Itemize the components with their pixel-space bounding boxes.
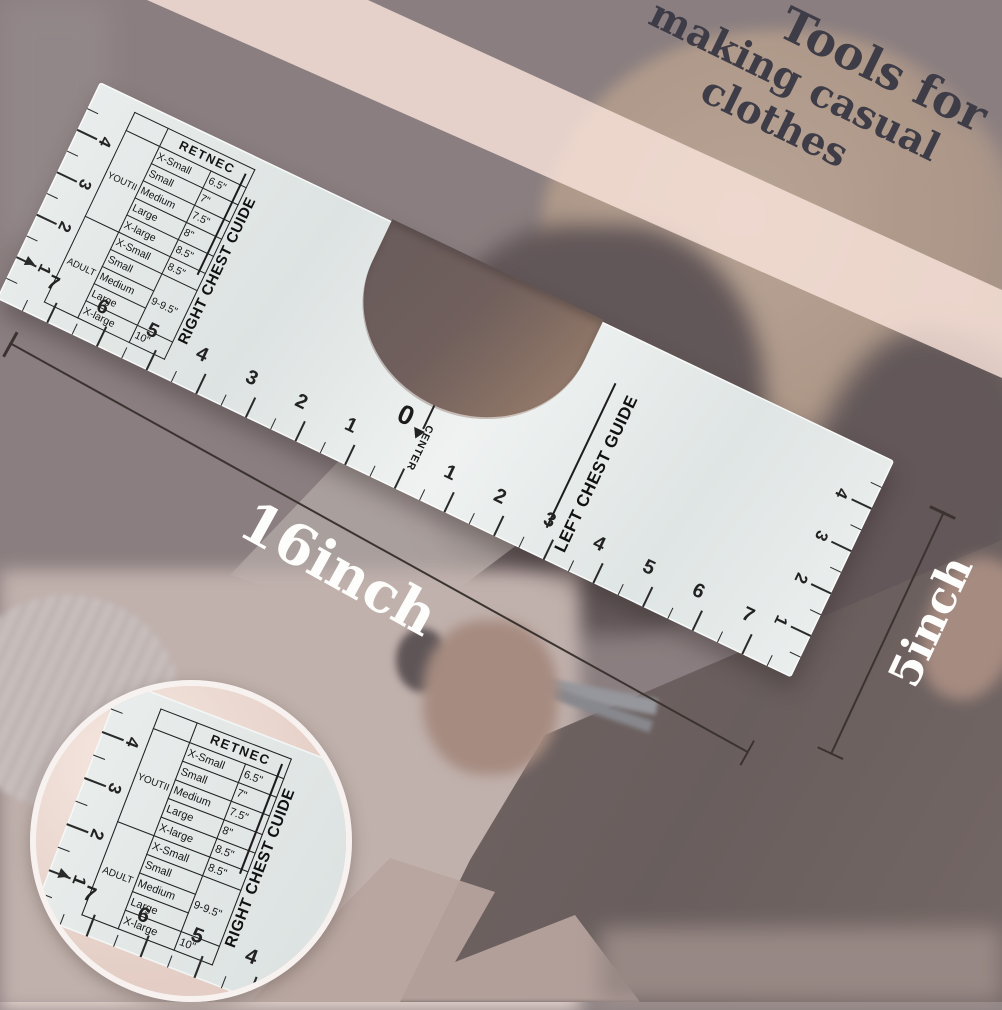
ruler-tick <box>851 498 872 509</box>
ruler-tick <box>850 524 862 531</box>
ruler-tick <box>831 541 852 552</box>
right-scale-number: 3 <box>810 527 832 544</box>
ruler-tick <box>810 609 822 616</box>
right-scale-number: 2 <box>790 569 812 586</box>
ruler-tick <box>811 583 832 594</box>
ruler-tick <box>830 566 842 573</box>
magnifier-inset-circle: RETNEC YOUTII X-Small 6.5" Small 7" Medi… <box>30 680 352 1002</box>
ruler-tick <box>790 651 802 658</box>
right-scale: 4321 <box>32 680 352 1002</box>
right-scale-number: 4 <box>830 485 852 502</box>
ruler-tick <box>791 626 812 637</box>
ruler-face-inset: RETNEC YOUTII X-Small 6.5" Small 7" Medi… <box>32 680 352 1002</box>
right-scale-number: 1 <box>769 612 791 629</box>
ruler-tick <box>870 481 882 488</box>
